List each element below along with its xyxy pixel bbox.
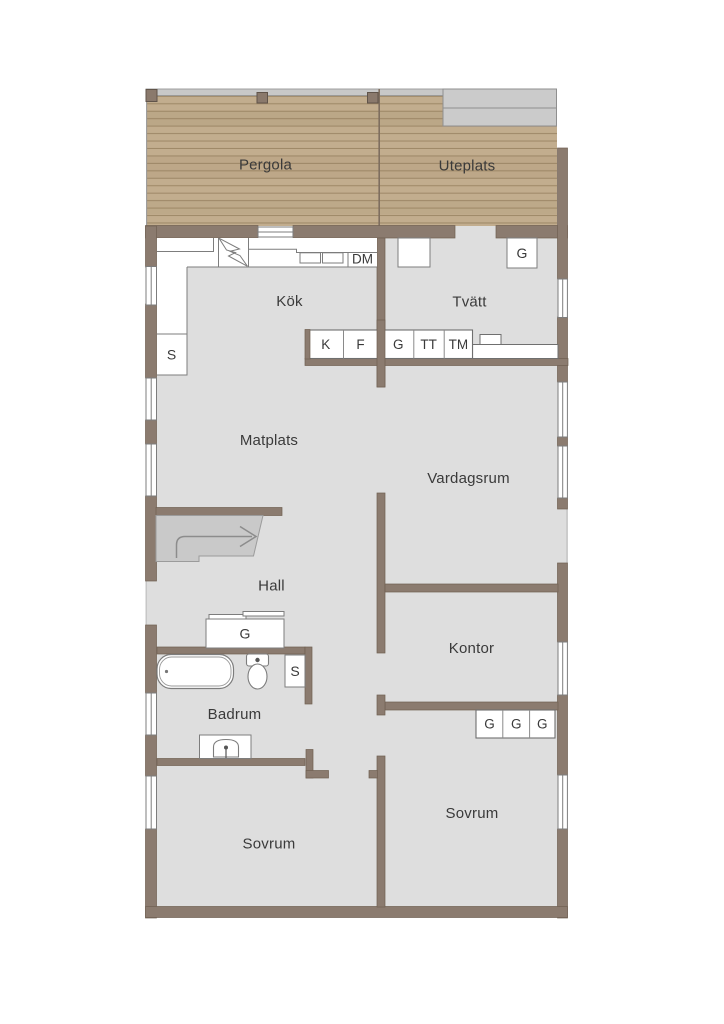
svg-text:Tvätt: Tvätt <box>452 293 487 310</box>
svg-text:F: F <box>356 337 364 352</box>
svg-text:Sovrum: Sovrum <box>446 805 499 822</box>
svg-text:K: K <box>321 337 330 352</box>
svg-text:S: S <box>167 347 176 363</box>
svg-text:G: G <box>240 626 251 642</box>
svg-text:TM: TM <box>449 337 469 352</box>
svg-text:Vardagsrum: Vardagsrum <box>427 470 510 487</box>
svg-text:DM: DM <box>352 252 373 267</box>
svg-text:G: G <box>484 717 495 732</box>
svg-text:Hall: Hall <box>258 578 285 595</box>
svg-text:G: G <box>511 717 522 732</box>
svg-text:Sovrum: Sovrum <box>243 836 296 853</box>
svg-text:G: G <box>517 245 528 261</box>
svg-text:Badrum: Badrum <box>208 706 262 723</box>
svg-text:G: G <box>393 337 404 352</box>
svg-text:TT: TT <box>420 337 437 352</box>
svg-text:G: G <box>537 717 548 732</box>
svg-text:Kök: Kök <box>276 293 303 310</box>
svg-text:Uteplats: Uteplats <box>439 158 496 175</box>
svg-text:S: S <box>290 663 299 679</box>
svg-text:Kontor: Kontor <box>449 640 494 657</box>
svg-text:Matplats: Matplats <box>240 432 298 449</box>
svg-text:Pergola: Pergola <box>239 157 293 174</box>
